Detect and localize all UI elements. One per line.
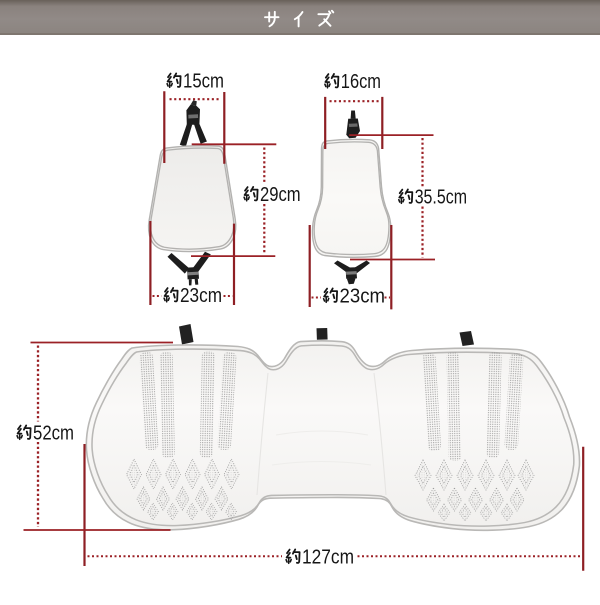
svg-text:127cm: 127cm <box>302 547 354 569</box>
svg-text:52cm: 52cm <box>33 423 74 445</box>
svg-text:23cm: 23cm <box>180 285 222 307</box>
svg-text:29cm: 29cm <box>260 184 301 206</box>
svg-text:16cm: 16cm <box>341 71 381 93</box>
svg-text:35.5cm: 35.5cm <box>415 187 467 209</box>
svg-text:15cm: 15cm <box>183 71 224 93</box>
svg-text:23cm: 23cm <box>340 286 386 308</box>
